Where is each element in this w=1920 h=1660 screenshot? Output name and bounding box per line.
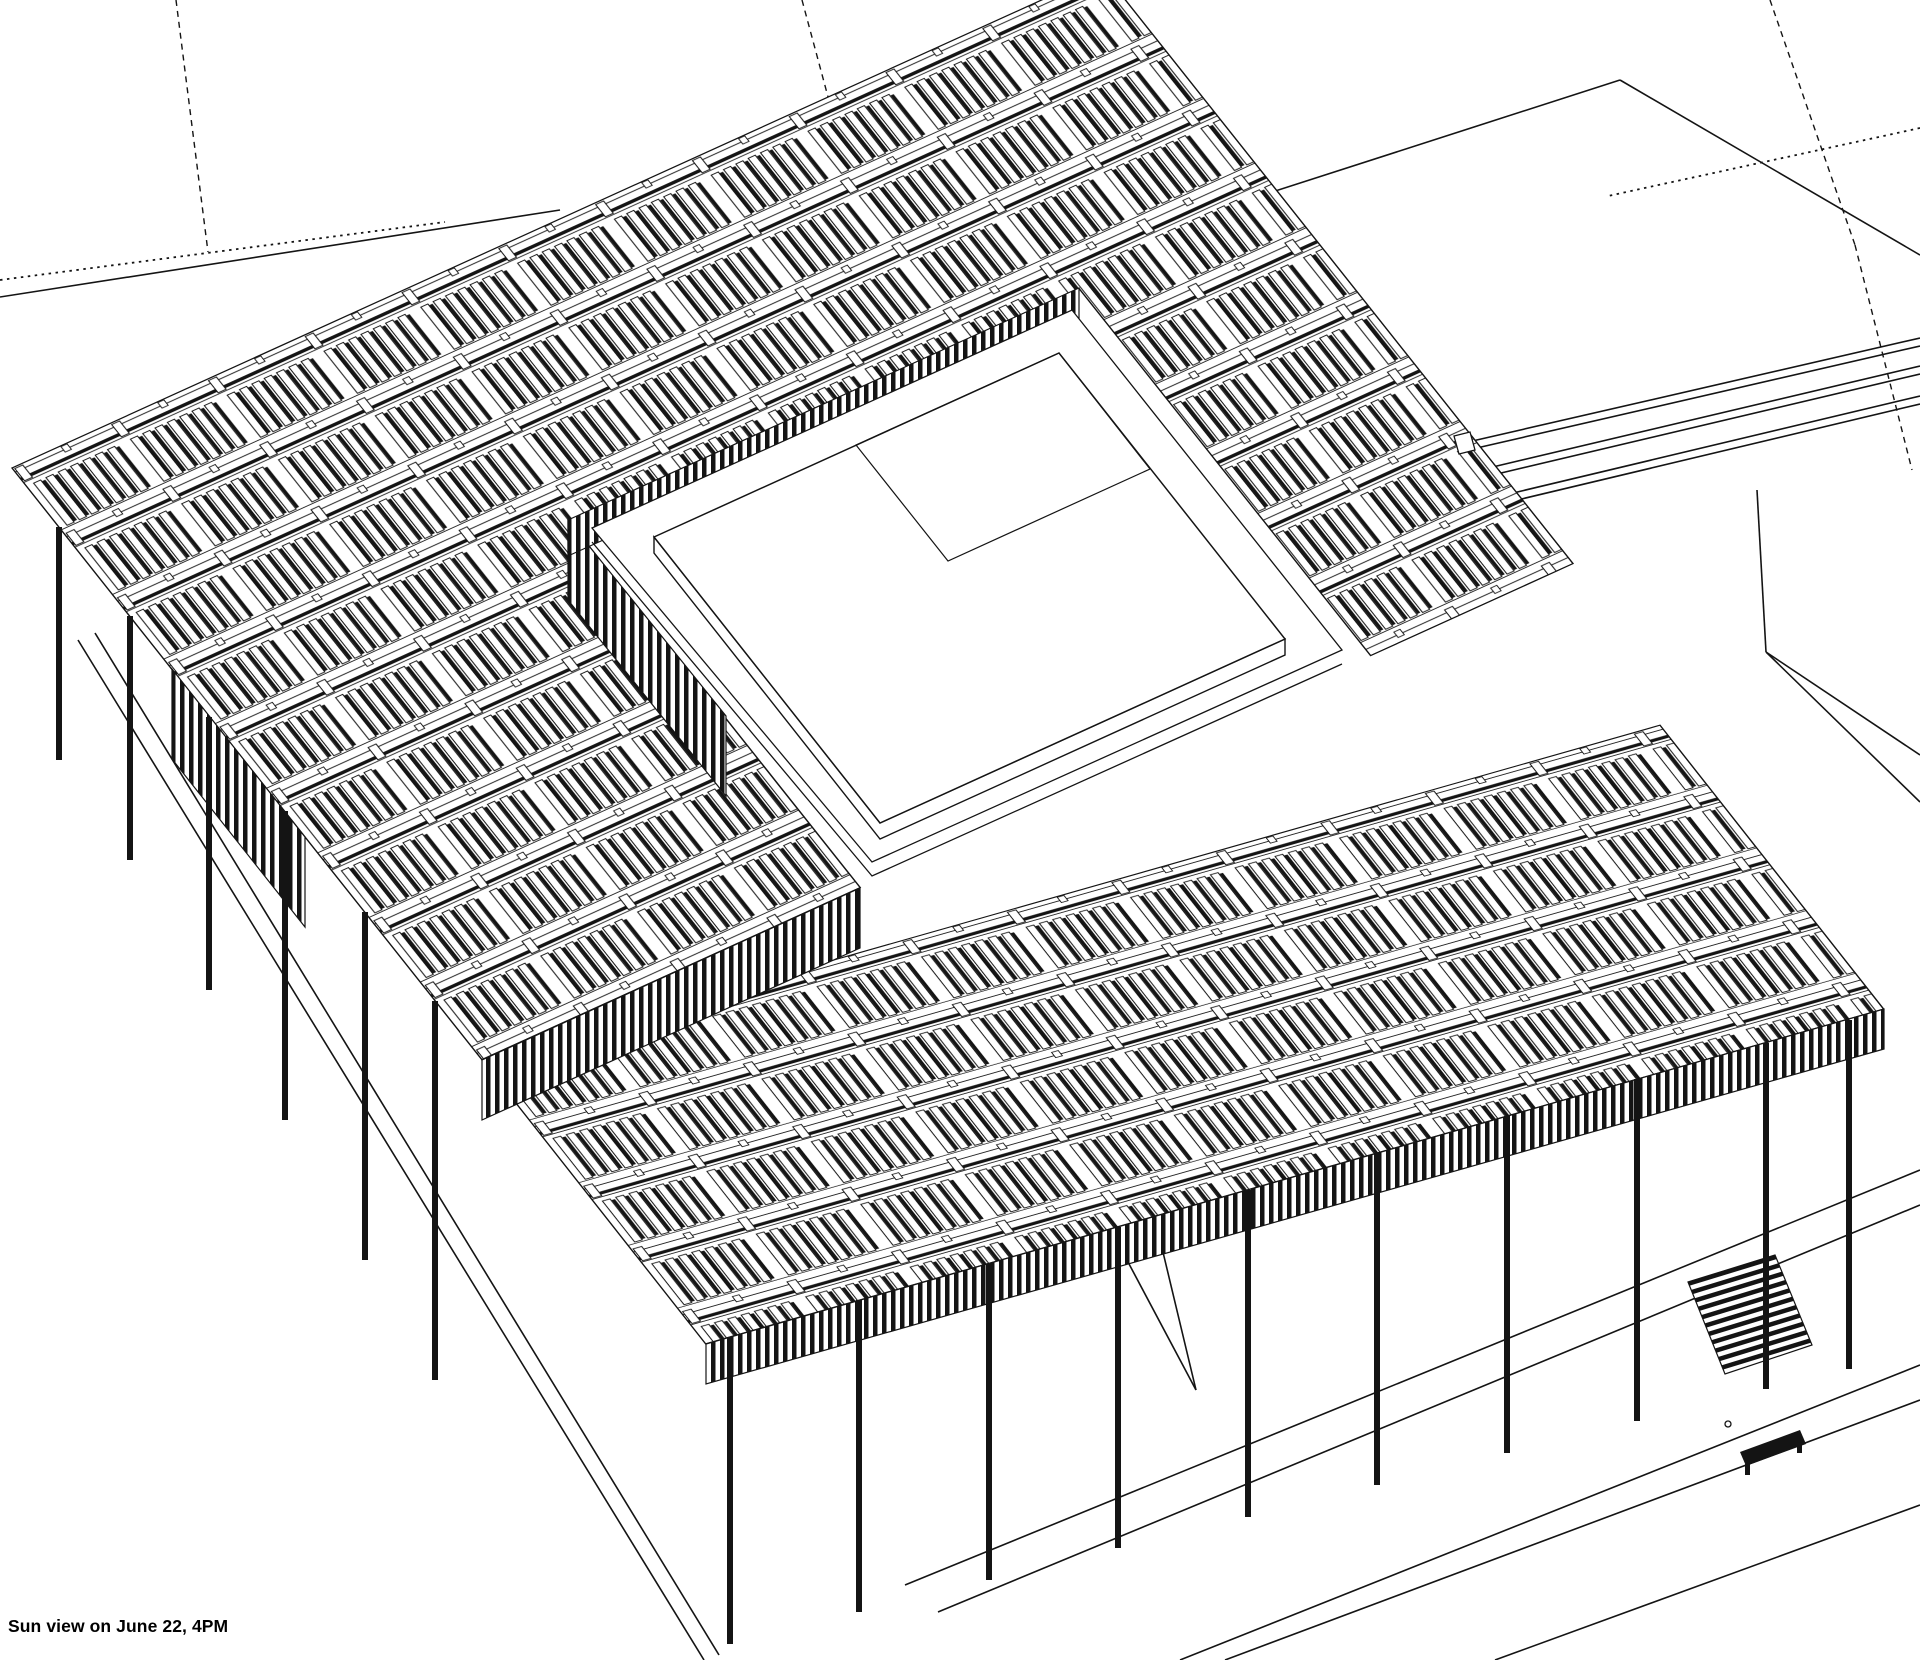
column [1115, 1227, 1121, 1548]
scene-line [1225, 1400, 1920, 1660]
column [362, 912, 368, 1260]
scene-line [1492, 404, 1920, 506]
scene-line [1480, 374, 1920, 478]
stairs [1688, 1255, 1812, 1374]
scene-line [1180, 1365, 1920, 1660]
column [1763, 1043, 1769, 1389]
scene-line [1766, 652, 1920, 802]
scene-line [1128, 1262, 1196, 1390]
column [1374, 1153, 1380, 1485]
bollard [1725, 1421, 1731, 1427]
scene-line [1766, 652, 1920, 755]
column [1245, 1190, 1251, 1517]
column [127, 616, 133, 860]
column [432, 1001, 438, 1380]
column [56, 527, 62, 760]
column [1846, 1020, 1852, 1369]
scene-line [802, 0, 831, 108]
scene-line [1468, 346, 1920, 450]
sun-study-drawing [0, 0, 1920, 1660]
scene-line [1757, 490, 1766, 652]
scene-line [1855, 245, 1912, 470]
scene-line [1495, 1505, 1920, 1660]
column [1504, 1116, 1510, 1453]
column [986, 1264, 992, 1580]
scene-line [1620, 80, 1920, 255]
scene-line [0, 222, 445, 280]
scene-line [1770, 0, 1855, 245]
bench [1740, 1430, 1806, 1475]
scene-line [1608, 128, 1920, 196]
column [727, 1337, 733, 1644]
column [282, 811, 288, 1120]
column [206, 717, 212, 990]
caption: Sun view on June 22, 4PM [8, 1616, 228, 1637]
scene-line [1492, 396, 1920, 498]
scene-line [176, 0, 208, 252]
column [1634, 1079, 1640, 1421]
drawing-stage: Sun view on June 22, 4PM [0, 0, 1920, 1660]
column [856, 1300, 862, 1612]
scene-line [1162, 1248, 1196, 1390]
scene-line [1480, 366, 1920, 470]
